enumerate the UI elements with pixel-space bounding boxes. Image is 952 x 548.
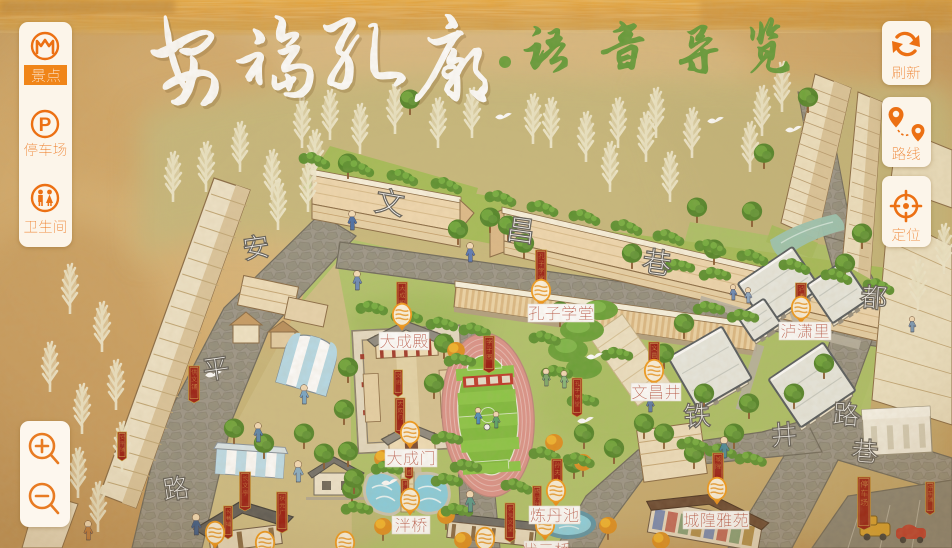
svg-text:P: P <box>39 115 52 136</box>
